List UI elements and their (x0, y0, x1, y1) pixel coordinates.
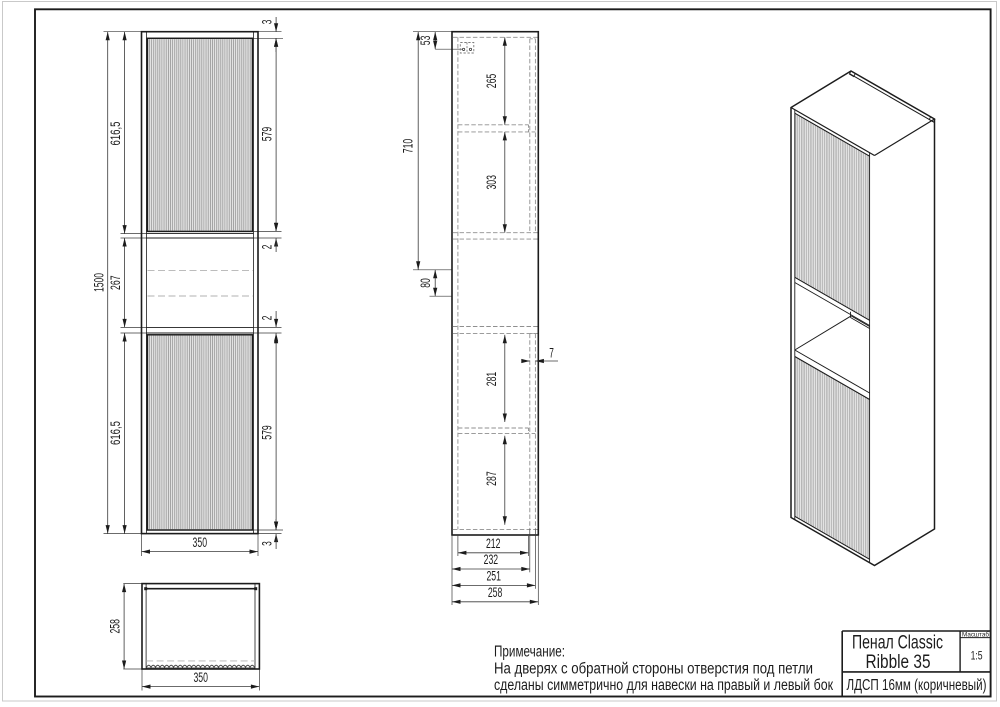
svg-text:На дверях с обратной стороны о: На дверях с обратной стороны отверстия п… (494, 661, 813, 678)
svg-text:3: 3 (260, 20, 275, 25)
svg-text:2: 2 (260, 316, 275, 321)
svg-text:1:5: 1:5 (971, 649, 983, 663)
svg-text:Ribble 35: Ribble 35 (866, 652, 931, 673)
svg-text:ЛДСП 16мм (коричневый): ЛДСП 16мм (коричневый) (847, 677, 987, 694)
svg-text:258: 258 (488, 585, 503, 600)
svg-text:1500: 1500 (91, 273, 106, 292)
svg-text:2: 2 (260, 245, 275, 250)
svg-text:3: 3 (260, 541, 275, 546)
svg-text:287: 287 (484, 471, 499, 486)
svg-text:281: 281 (484, 372, 499, 387)
svg-text:267: 267 (108, 275, 123, 290)
svg-text:сделаны симметрично для навеск: сделаны симметрично для навески на правы… (494, 677, 833, 694)
svg-text:7: 7 (549, 346, 554, 361)
svg-text:Примечание:: Примечание: (494, 644, 565, 661)
svg-text:710: 710 (400, 139, 415, 154)
svg-text:616,5: 616,5 (108, 421, 123, 445)
svg-text:616,5: 616,5 (108, 122, 123, 146)
svg-text:Пенал Classic: Пенал Classic (852, 632, 943, 653)
svg-text:265: 265 (484, 74, 499, 89)
svg-text:350: 350 (193, 670, 208, 685)
svg-text:Масштаб: Масштаб (962, 631, 989, 638)
svg-text:350: 350 (193, 535, 208, 550)
svg-text:579: 579 (260, 127, 275, 142)
svg-text:80: 80 (418, 278, 433, 288)
svg-text:258: 258 (108, 619, 123, 634)
svg-text:579: 579 (260, 425, 275, 440)
svg-text:303: 303 (484, 175, 499, 190)
svg-text:232: 232 (484, 552, 499, 567)
svg-text:53: 53 (418, 36, 433, 46)
svg-text:212: 212 (486, 536, 501, 551)
svg-text:251: 251 (486, 568, 501, 583)
